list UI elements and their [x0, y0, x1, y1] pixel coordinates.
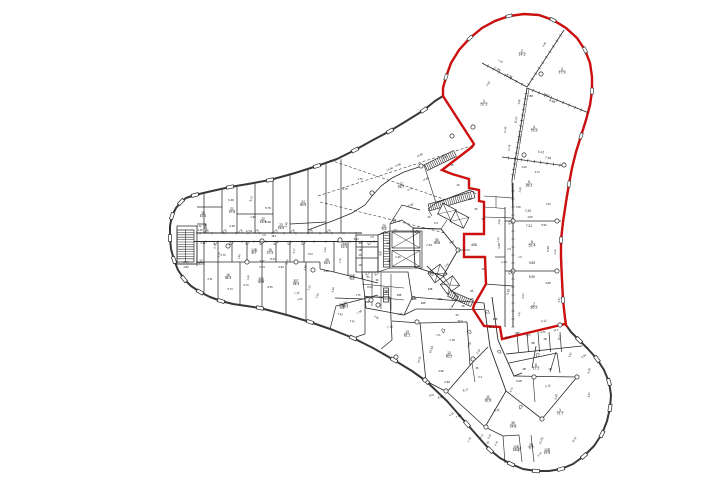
svg-text:5.90: 5.90 — [541, 223, 547, 227]
svg-text:2.14: 2.14 — [183, 260, 189, 264]
svg-text:16: 16 — [358, 263, 362, 267]
svg-text:2.74: 2.74 — [259, 265, 265, 269]
svg-text:3.94: 3.94 — [278, 265, 284, 269]
svg-text:51.4: 51.4 — [529, 244, 536, 248]
svg-text:2.46: 2.46 — [496, 237, 500, 243]
svg-text:8.35: 8.35 — [267, 285, 273, 289]
svg-text:1.6: 1.6 — [507, 247, 511, 251]
svg-text:7.20: 7.20 — [525, 209, 531, 213]
svg-text:9.89: 9.89 — [529, 261, 535, 265]
svg-text:6.4: 6.4 — [478, 375, 482, 379]
svg-text:40B: 40B — [397, 293, 402, 297]
svg-text:8B: 8B — [531, 341, 534, 345]
svg-text:5.62: 5.62 — [557, 297, 561, 303]
svg-text:3B: 3B — [384, 290, 387, 294]
svg-text:7.33: 7.33 — [426, 243, 432, 247]
svg-text:17.9: 17.9 — [559, 71, 566, 75]
svg-text:3.97: 3.97 — [259, 259, 265, 263]
svg-text:1.75: 1.75 — [357, 177, 363, 181]
svg-text:5.90: 5.90 — [203, 223, 207, 229]
svg-text:1.5: 1.5 — [370, 235, 374, 239]
svg-text:57.2: 57.2 — [481, 103, 488, 107]
svg-text:1.98: 1.98 — [250, 215, 256, 219]
svg-text:1B: 1B — [548, 367, 552, 371]
svg-text:3.98: 3.98 — [497, 243, 501, 249]
svg-text:1B: 1B — [543, 337, 546, 341]
svg-text:2.80: 2.80 — [183, 265, 189, 269]
svg-text:18.1: 18.1 — [271, 234, 277, 238]
svg-text:5.90: 5.90 — [546, 246, 550, 252]
svg-text:7.5: 7.5 — [393, 228, 397, 232]
svg-text:1.6: 1.6 — [518, 255, 522, 259]
svg-text:7.04: 7.04 — [307, 252, 313, 256]
svg-text:3.98: 3.98 — [444, 380, 450, 384]
svg-text:1.18: 1.18 — [198, 229, 203, 232]
svg-text:6.08: 6.08 — [516, 379, 522, 383]
svg-text:7.16: 7.16 — [449, 338, 455, 342]
svg-text:34B: 34B — [428, 287, 433, 291]
svg-text:76.3: 76.3 — [531, 129, 538, 133]
svg-text:7.72: 7.72 — [387, 325, 393, 329]
svg-text:2.46: 2.46 — [395, 255, 401, 259]
svg-text:5.02: 5.02 — [521, 293, 525, 299]
svg-text:5.70: 5.70 — [265, 206, 271, 210]
svg-text:85.2: 85.2 — [531, 306, 538, 310]
svg-text:38.1: 38.1 — [526, 184, 533, 188]
svg-text:2.31: 2.31 — [207, 277, 213, 281]
svg-text:8.3: 8.3 — [434, 221, 438, 225]
svg-text:5.88: 5.88 — [545, 281, 551, 285]
svg-text:1.5: 1.5 — [262, 233, 266, 237]
svg-text:8.27: 8.27 — [270, 257, 276, 261]
svg-text:408: 408 — [471, 243, 477, 247]
svg-text:30.6: 30.6 — [457, 319, 463, 323]
svg-text:71.7: 71.7 — [557, 412, 564, 416]
svg-text:5.12: 5.12 — [541, 319, 548, 324]
svg-text:30: 30 — [358, 241, 362, 245]
svg-text:4.90: 4.90 — [438, 369, 444, 373]
svg-text:2.46: 2.46 — [553, 249, 557, 255]
svg-text:7.08: 7.08 — [515, 205, 521, 209]
svg-text:9.90: 9.90 — [529, 275, 535, 279]
svg-text:17.61: 17.61 — [246, 229, 253, 233]
svg-text:1.44: 1.44 — [501, 260, 507, 264]
svg-text:38.4: 38.4 — [488, 325, 494, 329]
svg-text:4.31: 4.31 — [517, 311, 521, 317]
svg-text:4.35: 4.35 — [229, 224, 235, 228]
svg-text:36: 36 — [475, 366, 479, 370]
svg-text:3.40: 3.40 — [521, 165, 527, 169]
svg-text:30E: 30E — [438, 297, 443, 301]
svg-text:14.3: 14.3 — [519, 53, 526, 57]
svg-text:34B: 34B — [412, 297, 417, 301]
svg-text:2.88: 2.88 — [527, 94, 533, 98]
svg-text:5.74: 5.74 — [227, 287, 233, 291]
svg-text:55B: 55B — [365, 300, 370, 304]
svg-text:3.98: 3.98 — [497, 219, 501, 225]
svg-text:6.73: 6.73 — [243, 283, 249, 287]
svg-text:4.79: 4.79 — [220, 253, 226, 257]
svg-text:5.75: 5.75 — [342, 187, 348, 191]
svg-text:2.31: 2.31 — [200, 241, 206, 245]
svg-text:4.05: 4.05 — [527, 215, 533, 219]
svg-text:4.74: 4.74 — [534, 170, 540, 174]
svg-text:1.78: 1.78 — [356, 294, 361, 297]
svg-text:7.20: 7.20 — [545, 202, 551, 206]
svg-text:3B: 3B — [358, 248, 361, 252]
svg-text:4B: 4B — [522, 367, 526, 371]
svg-text:8.04: 8.04 — [367, 285, 373, 289]
svg-text:30B: 30B — [421, 301, 426, 305]
svg-text:2.98: 2.98 — [323, 269, 329, 273]
svg-text:5.90: 5.90 — [265, 220, 271, 224]
svg-text:1.42: 1.42 — [197, 225, 202, 228]
svg-text:7.31: 7.31 — [526, 224, 532, 228]
svg-text:6.36: 6.36 — [228, 198, 234, 202]
svg-text:30B: 30B — [493, 317, 498, 321]
